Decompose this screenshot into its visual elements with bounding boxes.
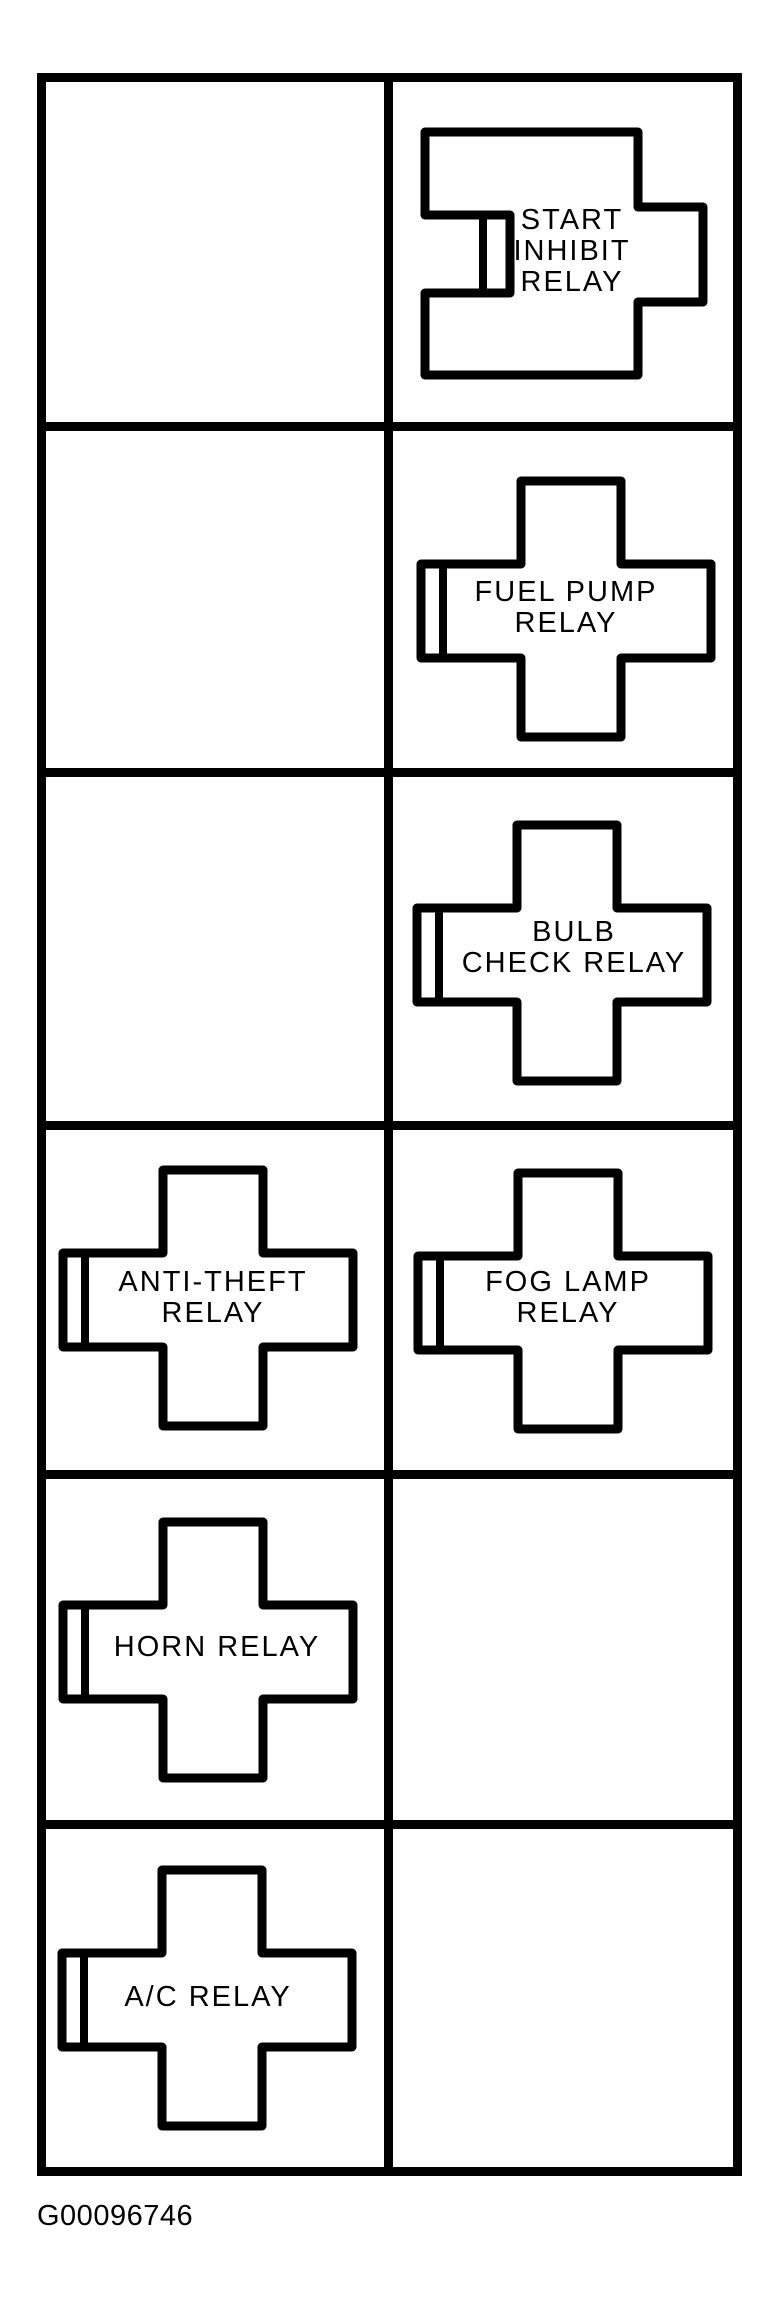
fuel-pump-relay-label: FUEL PUMP RELAY	[446, 577, 686, 639]
anti-theft-relay-label: ANTI-THEFT RELAY	[83, 1267, 343, 1329]
row-divider-line-1	[40, 422, 739, 431]
row-divider-line-3	[40, 1121, 739, 1130]
horn-relay-label: HORN RELAY	[87, 1632, 347, 1663]
start-inhibit-relay-label: START INHIBIT RELAY	[472, 205, 672, 298]
row-divider-line-4	[40, 1470, 739, 1479]
figure-caption: G00096746	[37, 2200, 193, 2233]
row-divider-line-2	[40, 768, 739, 777]
fog-lamp-relay-label: FOG LAMP RELAY	[448, 1267, 688, 1329]
ac-relay-label: A/C RELAY	[78, 1982, 338, 2013]
row-divider-line-5	[40, 1820, 739, 1829]
bulb-check-relay-label: BULB CHECK RELAY	[444, 917, 704, 979]
relay-identification-diagram: START INHIBIT RELAY FUEL PUMP RELAY BULB…	[0, 0, 777, 2300]
